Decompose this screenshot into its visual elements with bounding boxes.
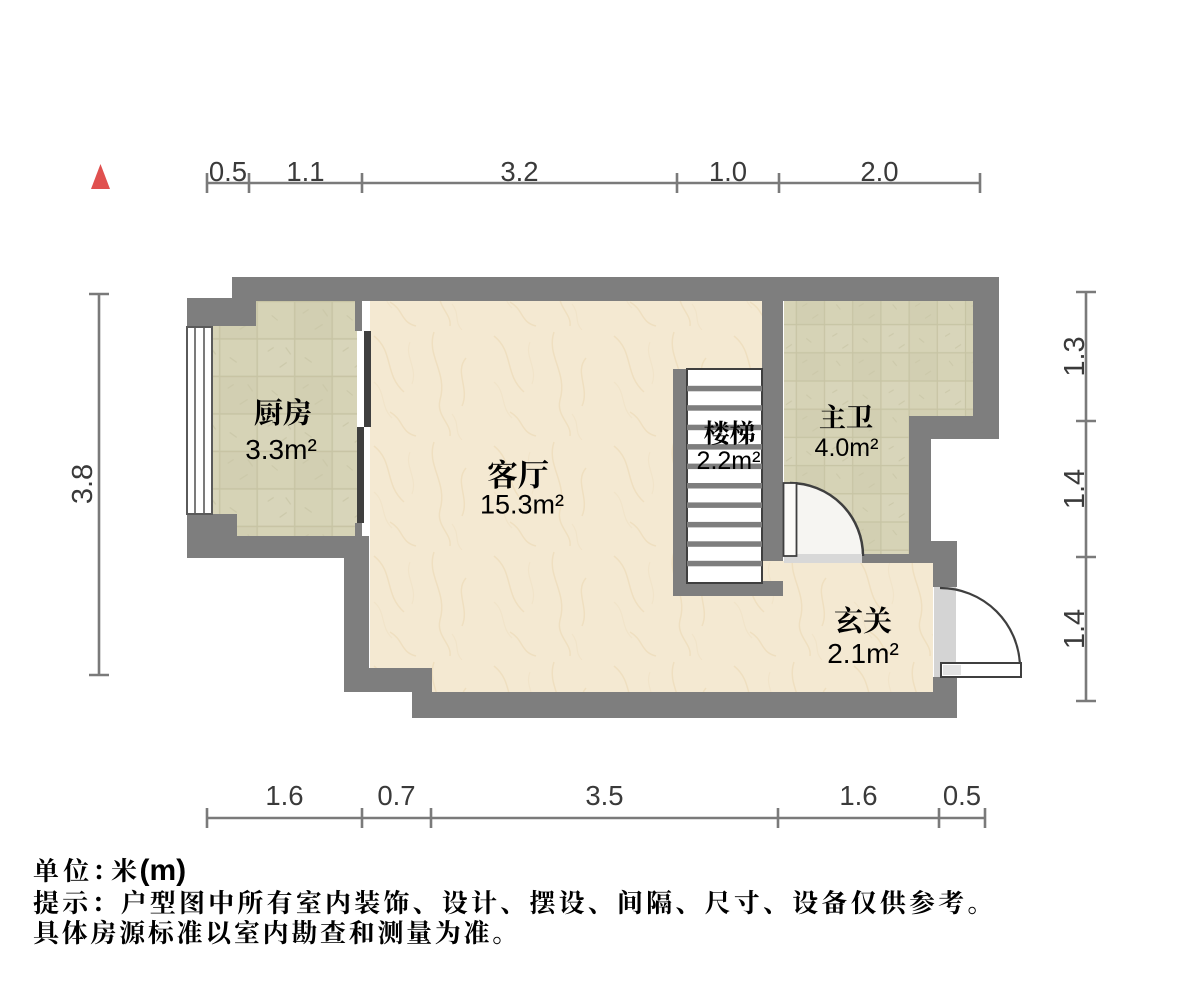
svg-text:3.2: 3.2 bbox=[500, 156, 538, 187]
svg-text:1.4: 1.4 bbox=[1059, 609, 1091, 649]
svg-text:3.5: 3.5 bbox=[585, 780, 623, 811]
svg-text:1.0: 1.0 bbox=[709, 156, 747, 187]
svg-text:3.3m²: 3.3m² bbox=[245, 434, 317, 465]
svg-text:1.4: 1.4 bbox=[1059, 469, 1091, 509]
svg-text:0.7: 0.7 bbox=[377, 780, 415, 811]
svg-text:0.5: 0.5 bbox=[209, 156, 247, 187]
svg-text:1.6: 1.6 bbox=[839, 780, 877, 811]
svg-text:1.3: 1.3 bbox=[1059, 336, 1091, 376]
svg-text:(m): (m) bbox=[140, 854, 187, 887]
svg-text:2.1m²: 2.1m² bbox=[827, 638, 899, 669]
svg-text:15.3m²: 15.3m² bbox=[480, 490, 564, 520]
svg-text:2.2m²: 2.2m² bbox=[697, 447, 761, 475]
svg-text:4.0m²: 4.0m² bbox=[815, 434, 879, 462]
svg-text:2.0: 2.0 bbox=[860, 156, 898, 187]
svg-text:1.6: 1.6 bbox=[265, 780, 303, 811]
svg-text:1.1: 1.1 bbox=[286, 156, 324, 187]
svg-text:0.5: 0.5 bbox=[943, 780, 981, 811]
svg-text:3.8: 3.8 bbox=[67, 464, 99, 504]
